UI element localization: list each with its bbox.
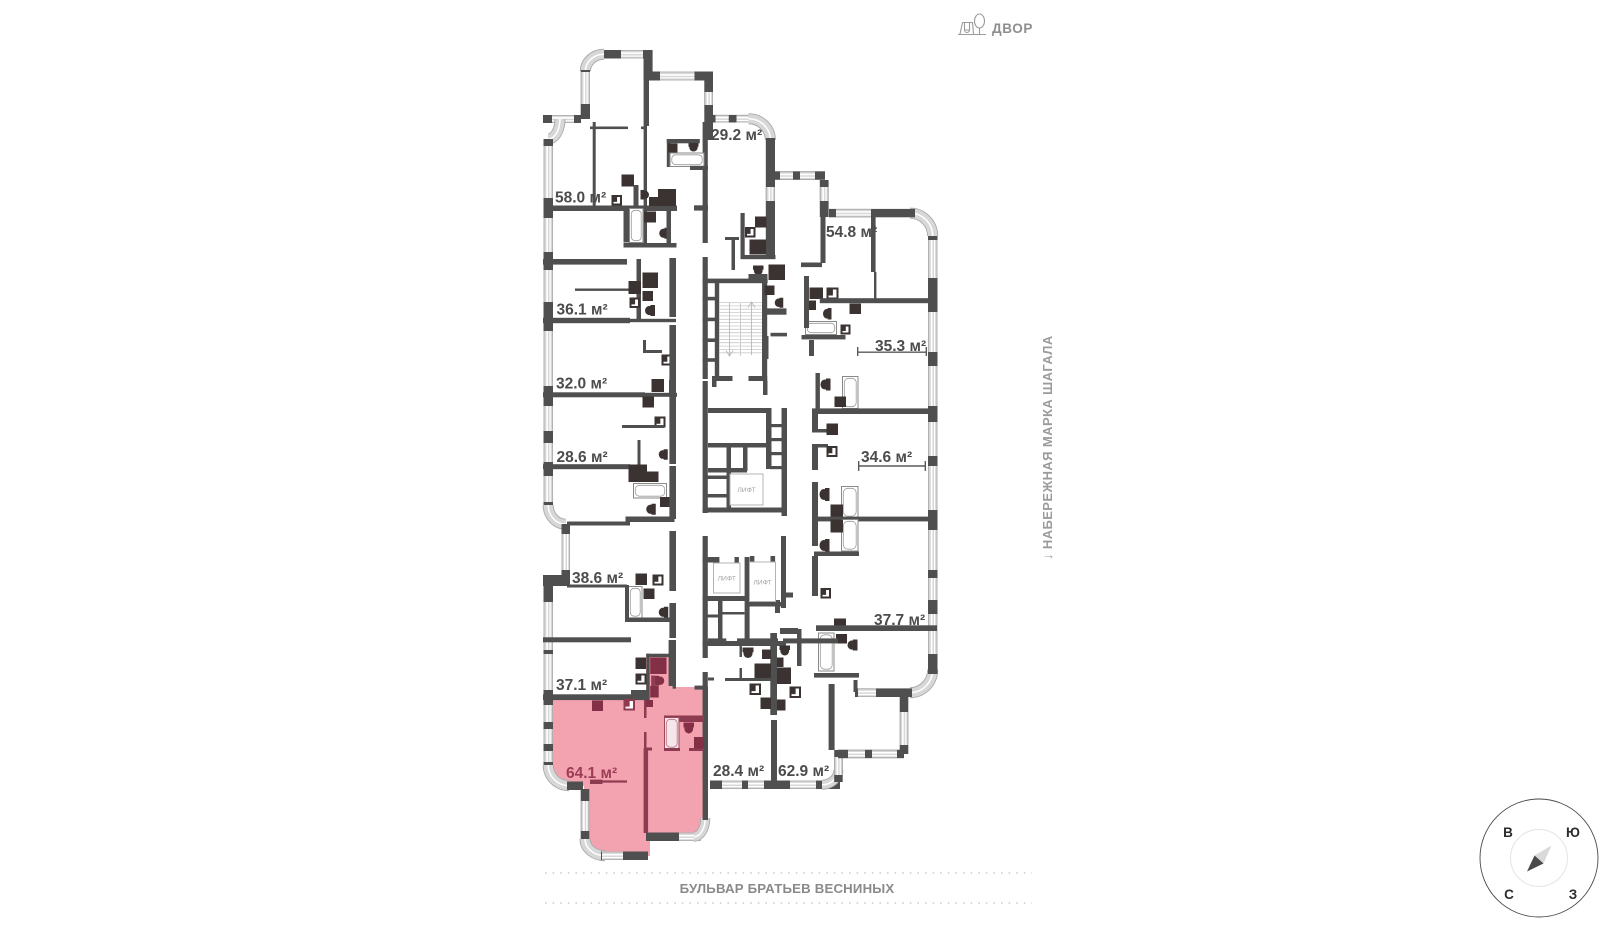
svg-text:ЛИФТ: ЛИФТ xyxy=(753,579,771,586)
svg-text:В: В xyxy=(1503,825,1513,840)
svg-text:28.4 м²: 28.4 м² xyxy=(713,763,764,780)
svg-text:64.1 м²: 64.1 м² xyxy=(566,765,617,782)
svg-text:58.0 м²: 58.0 м² xyxy=(555,190,606,207)
svg-text:28.6 м²: 28.6 м² xyxy=(557,449,608,466)
svg-text:32.0 м²: 32.0 м² xyxy=(556,376,607,393)
svg-text:БУЛЬВАР БРАТЬЕВ ВЕСНИНЫХ: БУЛЬВАР БРАТЬЕВ ВЕСНИНЫХ xyxy=(680,881,895,896)
svg-text:Ю: Ю xyxy=(1566,825,1580,840)
svg-text:36.1 м²: 36.1 м² xyxy=(557,302,608,319)
svg-text:С: С xyxy=(1504,887,1514,902)
svg-text:62.9 м²: 62.9 м² xyxy=(778,763,829,780)
svg-text:29.2 м²: 29.2 м² xyxy=(711,127,762,144)
svg-text:З: З xyxy=(1569,887,1577,902)
svg-text:38.6 м²: 38.6 м² xyxy=(572,570,623,587)
svg-text:ЛИФТ: ЛИФТ xyxy=(737,487,755,494)
svg-text:ЛИФТ: ЛИФТ xyxy=(718,576,736,583)
svg-text:37.1 м²: 37.1 м² xyxy=(556,677,607,694)
svg-text:↓ НАБЕРЕЖНАЯ МАРКА ШАГАЛА: ↓ НАБЕРЕЖНАЯ МАРКА ШАГАЛА xyxy=(1040,335,1055,560)
svg-text:54.8 м²: 54.8 м² xyxy=(826,224,877,241)
svg-text:ДВОР: ДВОР xyxy=(992,21,1033,36)
svg-text:34.6 м²: 34.6 м² xyxy=(861,449,912,466)
